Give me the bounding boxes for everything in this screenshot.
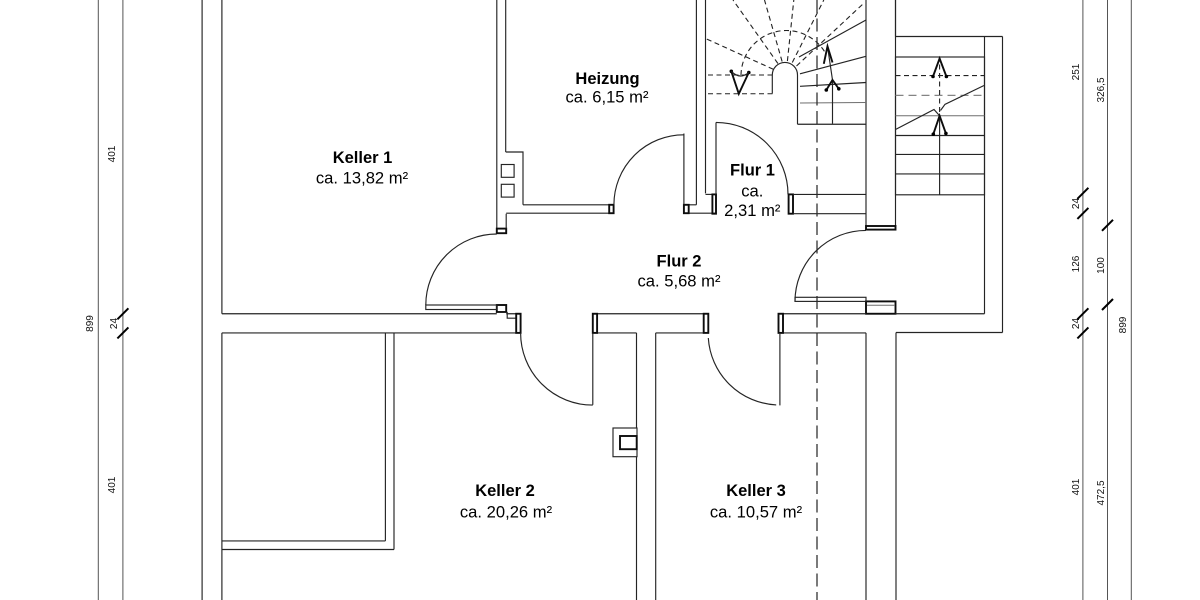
svg-text:401: 401 — [107, 476, 118, 493]
svg-text:24: 24 — [1071, 198, 1082, 210]
svg-text:Flur 1: Flur 1 — [730, 162, 775, 180]
svg-text:Flur 2: Flur 2 — [657, 253, 702, 271]
svg-text:899: 899 — [85, 315, 96, 332]
svg-text:Keller 3: Keller 3 — [726, 482, 786, 500]
svg-text:126: 126 — [1071, 255, 1082, 272]
svg-text:Keller 2: Keller 2 — [475, 482, 535, 500]
svg-text:Keller 1: Keller 1 — [333, 149, 393, 167]
svg-text:24: 24 — [109, 318, 120, 330]
svg-text:ca. 20,26 m²: ca. 20,26 m² — [460, 503, 553, 522]
svg-text:326,5: 326,5 — [1096, 77, 1107, 102]
svg-text:401: 401 — [1071, 478, 1082, 495]
svg-text:251: 251 — [1071, 63, 1082, 80]
svg-text:Heizung: Heizung — [575, 70, 639, 88]
svg-text:401: 401 — [107, 145, 118, 162]
svg-text:ca. 6,15 m²: ca. 6,15 m² — [565, 88, 648, 107]
svg-text:100: 100 — [1096, 257, 1107, 274]
svg-text:24: 24 — [1071, 318, 1082, 330]
svg-text:ca. 10,57 m²: ca. 10,57 m² — [710, 503, 803, 522]
svg-text:899: 899 — [1118, 316, 1129, 333]
svg-text:ca. 13,82 m²: ca. 13,82 m² — [316, 168, 409, 187]
svg-text:ca. 5,68 m²: ca. 5,68 m² — [637, 272, 720, 291]
svg-text:472,5: 472,5 — [1096, 480, 1107, 505]
svg-text:ca.: ca. — [741, 181, 763, 200]
svg-text:2,31 m²: 2,31 m² — [724, 201, 781, 220]
